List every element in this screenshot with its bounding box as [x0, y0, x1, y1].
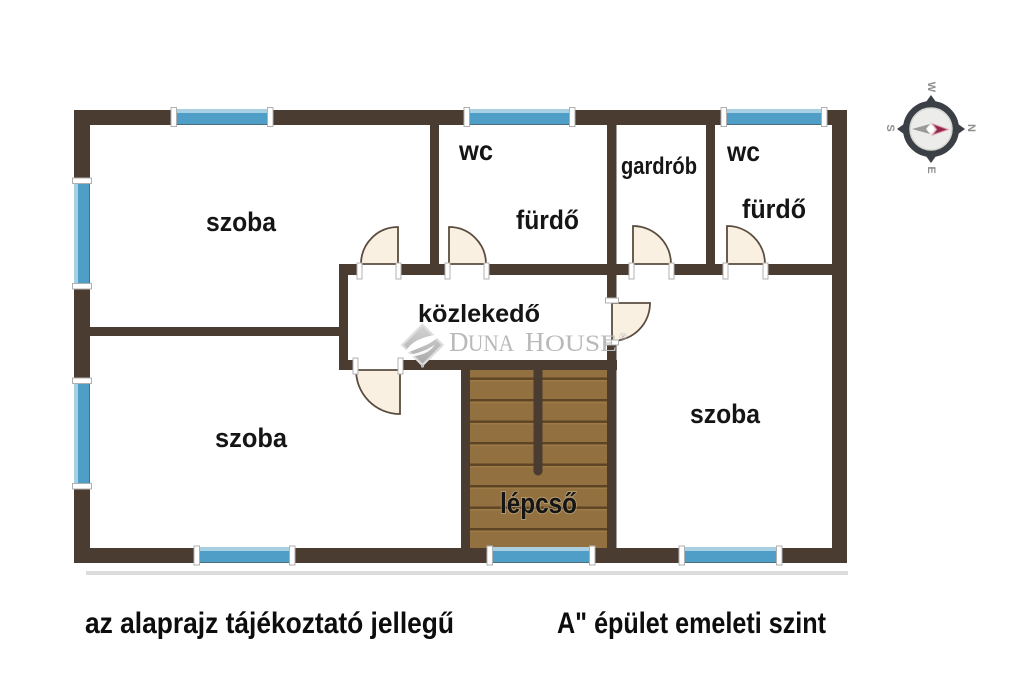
- svg-text:fürdő: fürdő: [516, 205, 579, 235]
- svg-text:H: H: [525, 327, 545, 357]
- svg-text:szoba: szoba: [215, 423, 288, 453]
- svg-text:UNA: UNA: [468, 331, 514, 357]
- svg-text:wc: wc: [726, 136, 760, 167]
- svg-text:szoba: szoba: [690, 399, 761, 429]
- svg-text:az alaprajz tájékoztató jelleg: az alaprajz tájékoztató jellegű: [85, 607, 454, 640]
- svg-text:OUSE: OUSE: [545, 331, 617, 357]
- svg-text:E: E: [925, 166, 937, 173]
- svg-text:közlekedő: közlekedő: [418, 300, 540, 328]
- svg-text:szoba: szoba: [206, 207, 277, 237]
- svg-text:D: D: [449, 327, 469, 357]
- svg-text:fürdő: fürdő: [742, 194, 806, 224]
- svg-text:A" épület emeleti szint: A" épület emeleti szint: [557, 607, 826, 640]
- svg-text:N: N: [965, 124, 977, 132]
- svg-text:gardrób: gardrób: [621, 153, 697, 180]
- svg-text:®: ®: [619, 331, 627, 343]
- svg-text:W: W: [925, 82, 937, 93]
- svg-text:wc: wc: [458, 135, 493, 166]
- svg-text:S: S: [884, 124, 896, 131]
- svg-text:lépcső: lépcső: [500, 488, 577, 520]
